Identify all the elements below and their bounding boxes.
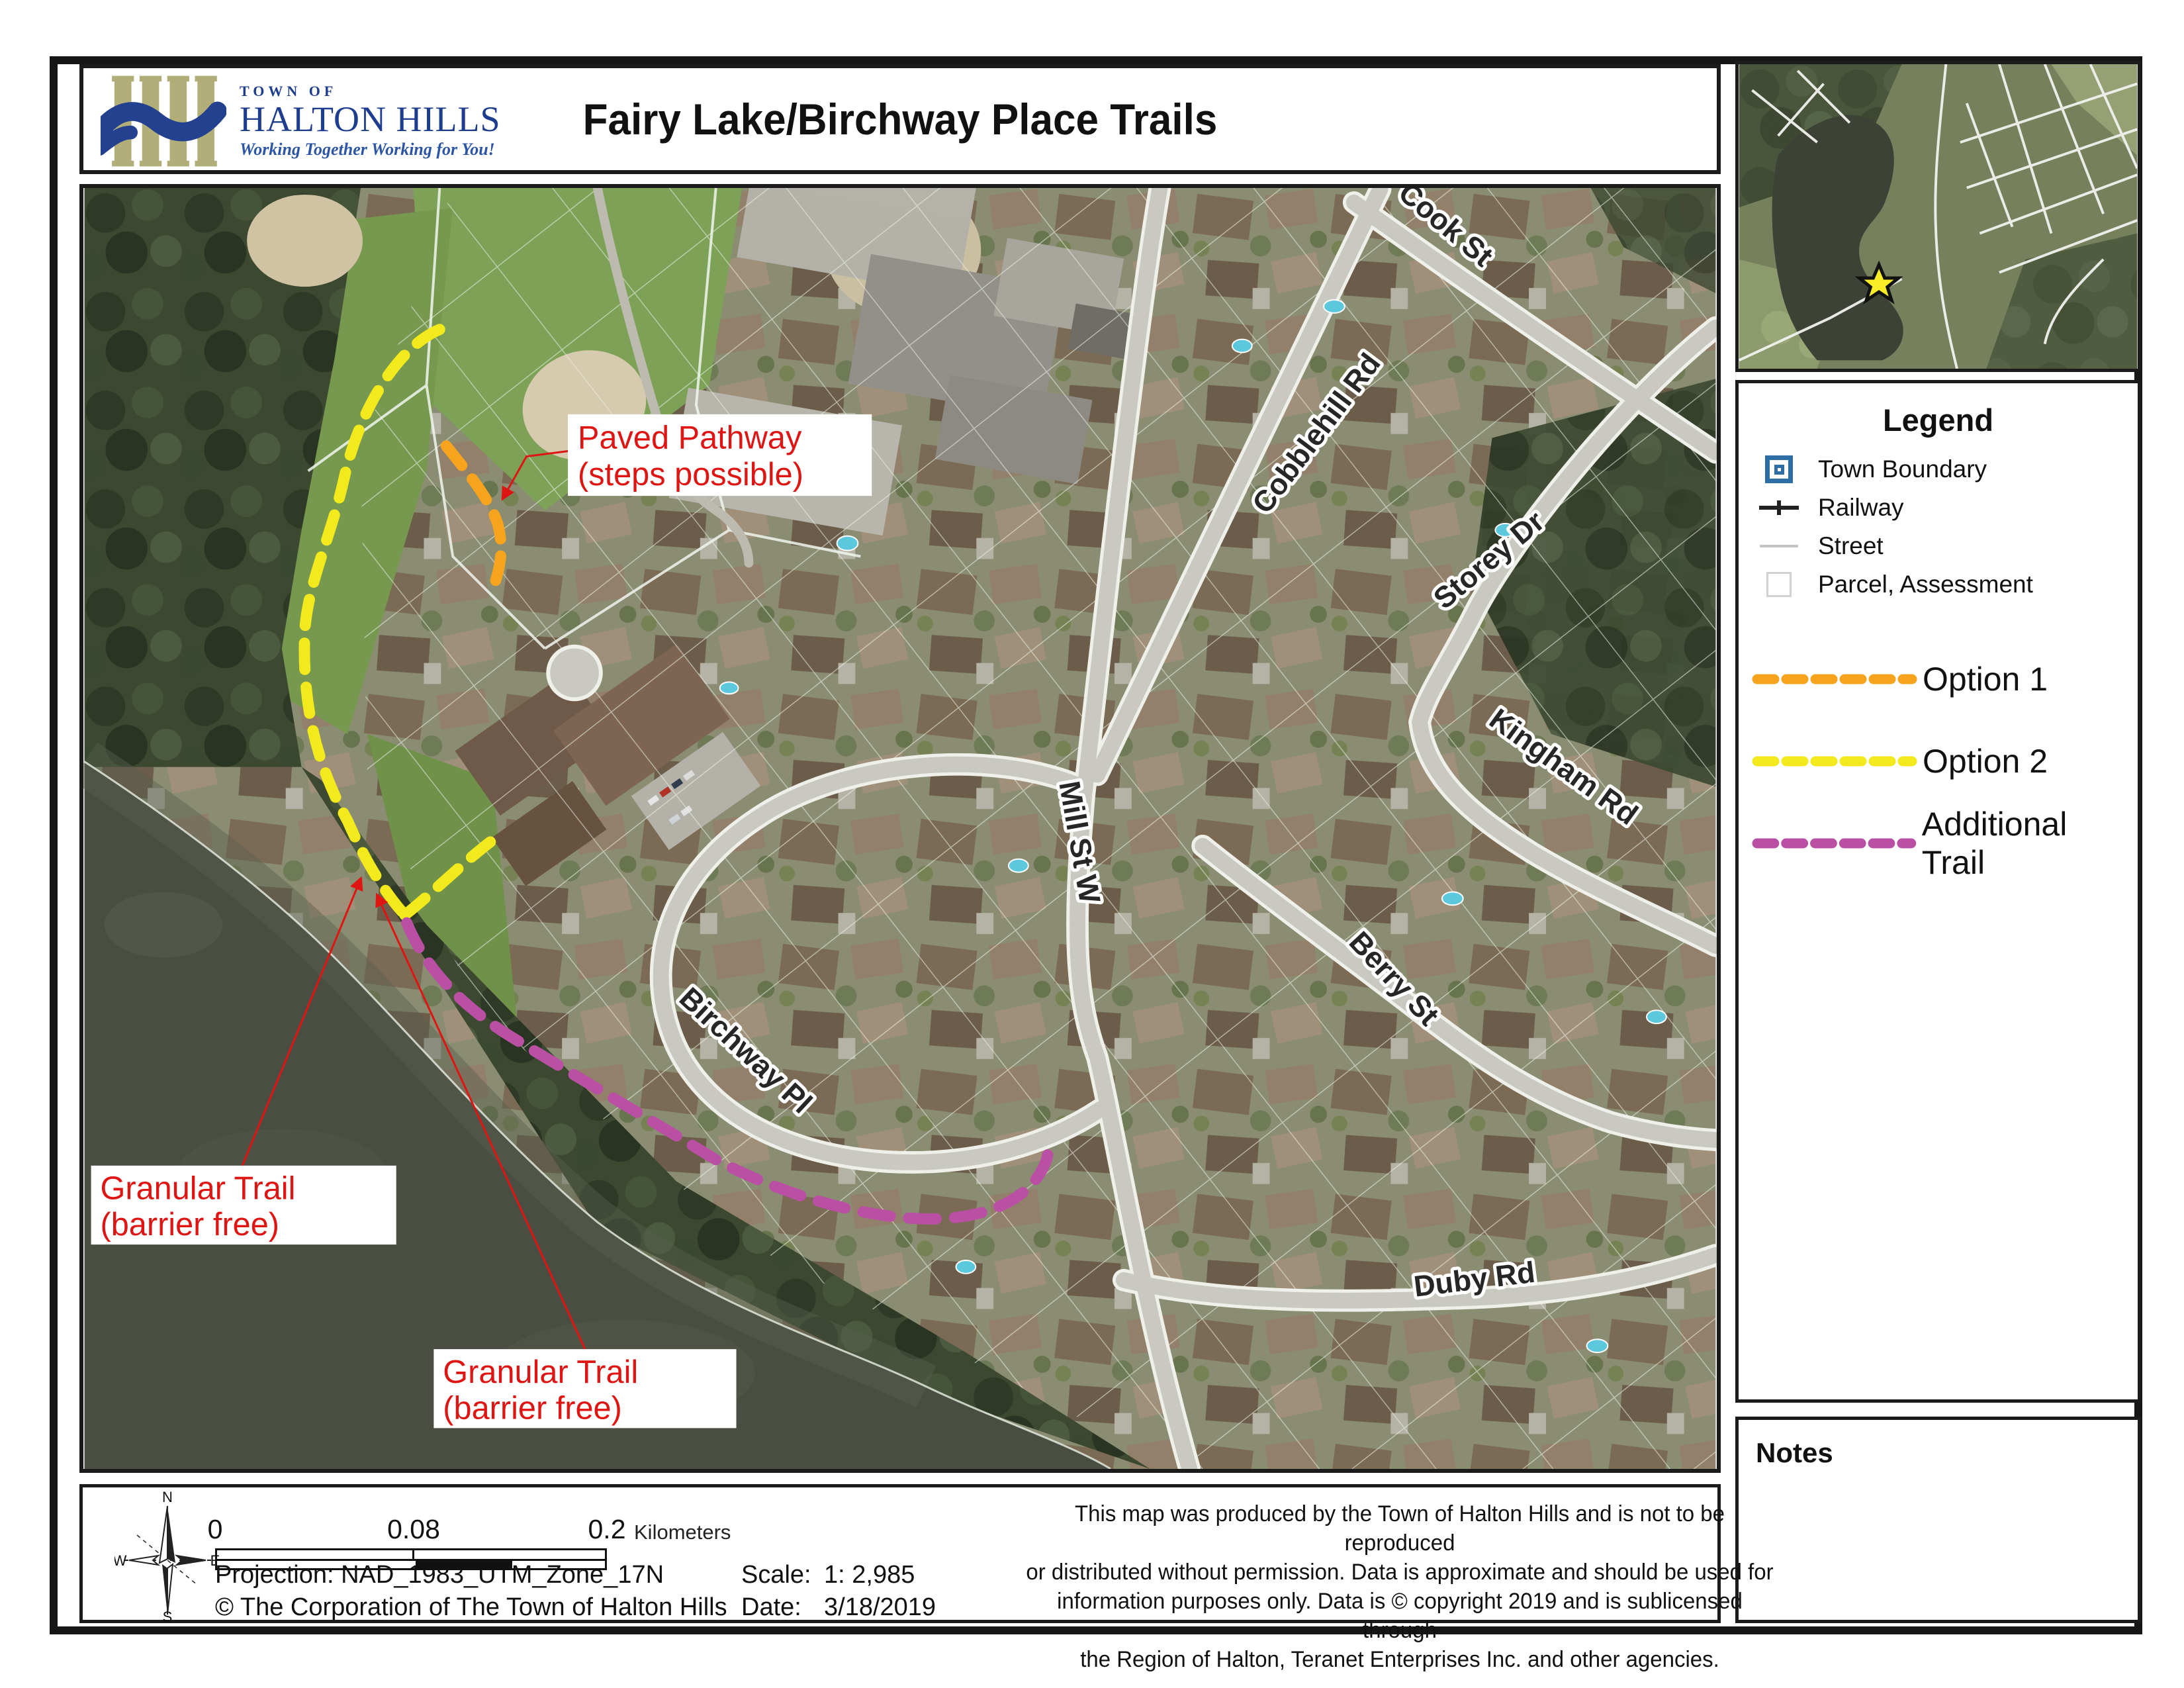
callout-text: Paved Pathway [578, 420, 802, 456]
legend-item-label: Option 1 [1917, 660, 2048, 698]
disclaimer-text: This map was produced by the Town of Hal… [1018, 1499, 1782, 1674]
footer-box: N E S W 0 0.08 0.2 Kilometers Projection… [79, 1484, 1721, 1623]
callout-text: (barrier free) [100, 1207, 279, 1243]
inset-map [1735, 61, 2141, 372]
callout-text: (steps possible) [578, 457, 803, 492]
legend-item-label: Additional Trail [1917, 805, 2138, 882]
notes-box: Notes [1735, 1417, 2141, 1623]
compass-s-label: S [163, 1609, 173, 1622]
callout-granular-trail-2: Granular Trail (barrier free) [433, 1349, 736, 1428]
main-map: Paved Pathway (steps possible) Granular … [79, 184, 1721, 1473]
notes-title: Notes [1756, 1437, 2138, 1469]
header-box: TOWN OF HALTON HILLS Working Together Wo… [79, 64, 1721, 174]
legend-item-label: Street [1802, 532, 1884, 560]
compass-w-label: W [114, 1552, 127, 1569]
option2-dash-icon [1752, 754, 1917, 769]
disclaimer-line: This map was produced by the Town of Hal… [1018, 1499, 1782, 1558]
disclaimer-line: or distributed without permission. Data … [1018, 1558, 1782, 1587]
disclaimer-line: information purposes only. Data is © cop… [1018, 1587, 1782, 1645]
compass-n-label: N [162, 1491, 173, 1505]
callout-text: Granular Trail [100, 1171, 295, 1207]
legend-item-label: Railway [1802, 494, 1904, 522]
logo-mark-icon [101, 74, 226, 168]
legend-item-label: Town Boundary [1802, 455, 1987, 483]
logo-tagline: Working Together Working for You! [240, 141, 501, 158]
railway-icon [1756, 499, 1802, 516]
legend-item-railway: Railway [1739, 489, 2138, 527]
date-label: Date: [741, 1591, 824, 1624]
court-bulb [548, 647, 601, 700]
legend-item-option2: Option 2 [1739, 720, 2138, 802]
scale-tick-label-0: 0 [208, 1514, 223, 1545]
scale-tick-label-008: 0.08 [387, 1514, 440, 1545]
date-value: 3/18/2019 [824, 1593, 936, 1621]
scale-date-block: Scale:1: 2,985 Date:3/18/2019 [741, 1559, 936, 1624]
legend-item-label: Parcel, Assessment [1802, 571, 2033, 598]
callout-text: (barrier free) [443, 1390, 622, 1426]
additional-trail-dash-icon [1752, 836, 1917, 851]
copyright-text: © The Corporation of The Town of Halton … [215, 1591, 727, 1624]
page-title: Fairy Lake/Birchway Place Trails [583, 94, 1218, 144]
disclaimer-line: the Region of Halton, Teranet Enterprise… [1018, 1645, 1782, 1674]
callout-granular-trail-1: Granular Trail (barrier free) [91, 1166, 396, 1244]
scale-value: 1: 2,985 [824, 1561, 915, 1589]
option1-dash-icon [1752, 672, 1917, 686]
legend-item-additional-trail: Additional Trail [1739, 802, 2138, 884]
aerial-basemap: Paved Pathway (steps possible) Granular … [83, 188, 1717, 1469]
north-arrow-icon: N E S W [114, 1491, 220, 1622]
scale-tick-label-02: 0.2 [588, 1514, 626, 1545]
street-icon [1756, 545, 1802, 547]
legend-item-street: Street [1739, 527, 2138, 565]
scale-label: Scale: [741, 1559, 824, 1591]
legend-item-option1: Option 1 [1739, 638, 2138, 720]
callout-paved-pathway: Paved Pathway (steps possible) [568, 414, 872, 496]
kilometers-label: Kilometers [634, 1521, 731, 1544]
legend-title: Legend [1739, 402, 2138, 438]
projection-text: Projection: NAD_1983_UTM_Zone_17N [215, 1559, 727, 1591]
logo-town-of: TOWN OF [240, 84, 501, 99]
halton-hills-logo: TOWN OF HALTON HILLS Working Together Wo… [101, 75, 501, 167]
projection-block: Projection: NAD_1983_UTM_Zone_17N © The … [215, 1559, 727, 1624]
legend-item-parcel: Parcel, Assessment [1739, 565, 2138, 604]
town-boundary-icon [1756, 455, 1802, 483]
inset-aerial [1739, 64, 2138, 369]
legend-box: Legend Town Boundary Railway Street Parc… [1735, 380, 2141, 1403]
legend-item-label: Option 2 [1917, 742, 2048, 780]
logo-name: HALTON HILLS [240, 101, 501, 137]
parcel-icon [1756, 572, 1802, 597]
callout-text: Granular Trail [443, 1354, 638, 1390]
legend-item-town-boundary: Town Boundary [1739, 450, 2138, 489]
map-document-page: TOWN OF HALTON HILLS Working Together Wo… [0, 0, 2184, 1688]
